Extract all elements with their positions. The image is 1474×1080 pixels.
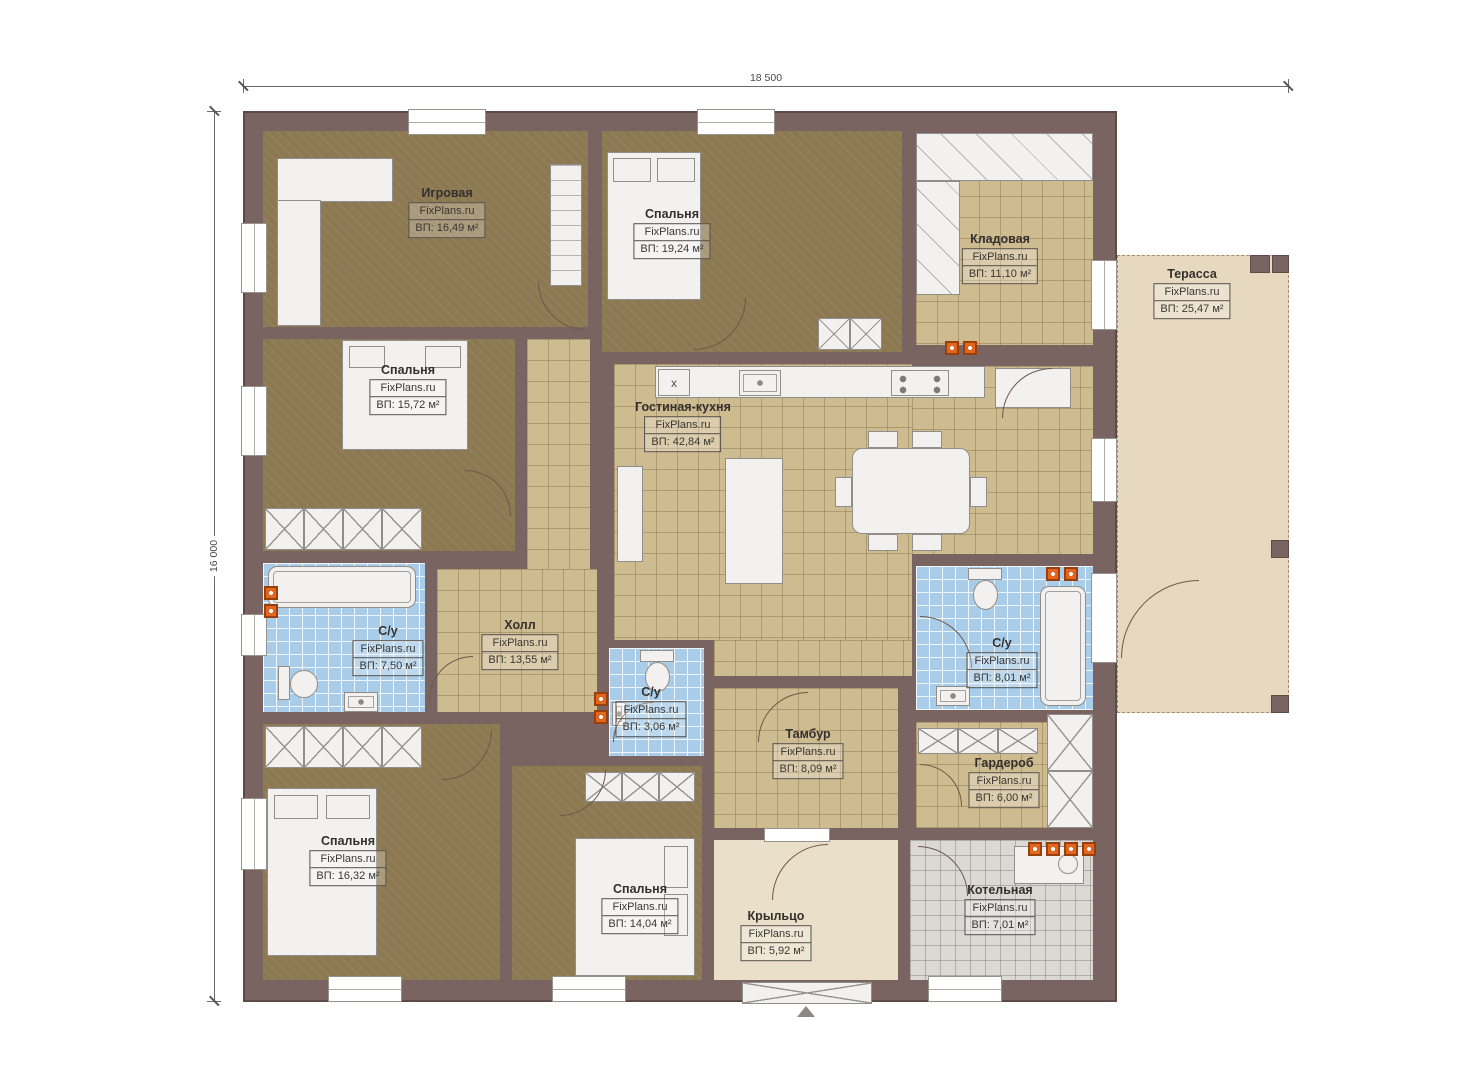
wardrobe-icon [1047,771,1093,828]
window [241,614,267,656]
sofa-icon [277,200,321,326]
door-opening [764,828,830,842]
window [241,386,267,456]
room-kholl [527,339,590,569]
vent-icon [1082,842,1096,856]
chair-icon [912,534,942,551]
window [928,976,1002,1002]
shelf-icon [916,181,960,295]
wardrobe-icon [265,508,304,550]
pillow-icon [425,346,461,368]
entrance-marker-icon [797,1006,815,1017]
vent-icon [1046,567,1060,581]
dimension-height-label: 16 000 [208,536,220,576]
tv-stand-icon [617,466,643,562]
vent-icon [1028,842,1042,856]
dimension-width-label: 18 500 [746,72,786,84]
bathtub-icon [1040,586,1086,706]
wardrobe-icon [958,728,998,754]
pillow-icon [274,795,318,819]
chair-icon [970,477,987,507]
pillow-icon [664,846,688,888]
terrace-post [1272,255,1289,273]
cabinet-icon [550,164,582,286]
vent-icon [264,586,278,600]
window [552,976,626,1002]
toilet-icon [278,666,290,700]
terrace-post [1271,540,1289,558]
wardrobe-icon [818,318,850,350]
window [408,109,486,135]
wardrobe-icon [1047,714,1093,771]
pillow-icon [664,894,688,936]
kitchen-sink-icon [739,370,781,396]
wardrobe-icon [622,772,659,802]
window [1091,260,1117,330]
vent-icon [594,692,608,706]
pillow-icon [326,795,370,819]
steps-icon [742,982,872,1004]
window [241,223,267,293]
wardrobe-icon [343,726,382,768]
vent-icon [264,604,278,618]
shelf-icon [916,133,1093,181]
vent-icon [963,341,977,355]
kitchen-x-mark: x [658,369,690,396]
bathtub-icon [268,566,416,608]
vent-icon [1064,567,1078,581]
room-gostinaya-1 [714,640,912,676]
vent-icon [1064,842,1078,856]
vent-icon [594,710,608,724]
wardrobe-icon [918,728,958,754]
wardrobe-icon [382,726,422,768]
floor-plan-canvas: 18 500 16 000 x ИгроваяFixPlans.ruВП: 16… [0,0,1474,1080]
chair-icon [835,477,852,507]
terrace-post [1250,255,1270,273]
terrace-post [1271,695,1289,713]
wardrobe-icon [659,772,695,802]
wardrobe-icon [304,508,343,550]
toilet-icon [290,670,318,698]
pillow-icon [657,158,695,182]
chair-icon [912,431,942,448]
toilet-icon [645,662,670,692]
dining-table-icon [852,448,970,534]
wardrobe-icon [304,726,343,768]
sofa-icon [277,158,393,202]
door-opening [1091,573,1117,663]
window [697,109,775,135]
chair-icon [868,431,898,448]
pillow-icon [613,158,651,182]
wardrobe-icon [850,318,882,350]
vent-icon [945,341,959,355]
wardrobe-icon [382,508,422,550]
pillow-icon [349,346,385,368]
sofa-icon [725,458,783,584]
vent-icon [1046,842,1060,856]
wardrobe-icon [998,728,1038,754]
stove-icon [891,370,949,396]
sink-icon [936,686,970,706]
dimension-line-top [243,86,1289,87]
toilet-icon [968,568,1002,580]
wardrobe-icon [343,508,382,550]
toilet-icon [640,650,674,662]
window [241,798,267,870]
chair-icon [868,534,898,551]
sink-icon [344,692,378,712]
window [1091,438,1117,502]
window [328,976,402,1002]
toilet-icon [973,580,998,610]
boiler-icon [1058,854,1078,874]
wardrobe-icon [265,726,304,768]
